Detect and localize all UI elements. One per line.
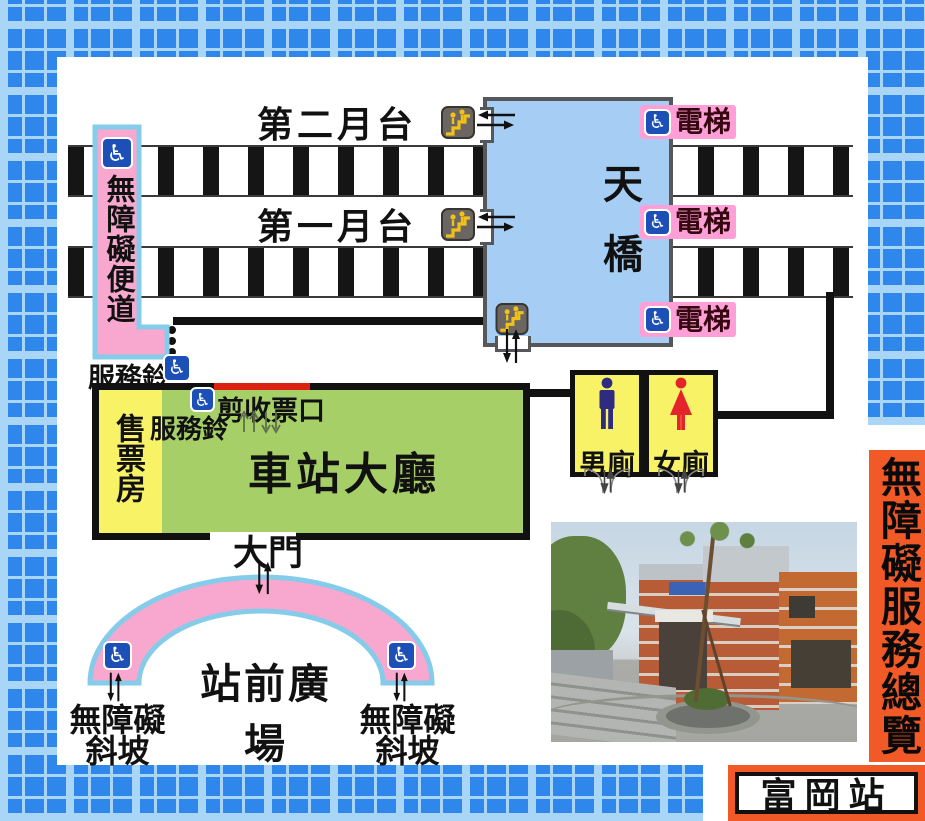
service-bell-label: 服務鈴	[88, 356, 169, 395]
ramp-label-line1: 無障礙	[350, 705, 465, 736]
ramp-label-left: 無障礙 斜坡	[60, 705, 175, 767]
ramp-label-line2: 斜坡	[60, 736, 175, 767]
wheelchair-icon	[387, 641, 416, 670]
station-name-box: 富岡站	[728, 765, 925, 821]
up-down-arrow-icon	[501, 327, 523, 370]
station-name-inner: 富岡站	[735, 772, 918, 814]
photo-window	[789, 596, 815, 618]
ramp-label-line1: 無障礙	[60, 705, 175, 736]
up-down-arrow-icon	[253, 560, 275, 601]
title-banner-text: 無障礙服務總覽	[877, 456, 918, 757]
elevator-text: 電梯	[675, 108, 731, 136]
hall-label: 車站大廳	[214, 438, 474, 502]
title-banner: 無障礙服務總覽	[869, 450, 925, 762]
photo-tree-foliage	[669, 522, 761, 554]
platform1-label: 第一月台	[237, 198, 437, 250]
left-right-arrow-icon	[475, 210, 517, 241]
elevator-label: 電梯	[640, 105, 736, 139]
hall-to-toilet-line	[530, 389, 570, 397]
platform2-label: 第二月台	[237, 96, 437, 148]
wheelchair-icon	[190, 387, 215, 412]
elevator-label: 電梯	[640, 205, 736, 239]
platform-edge-line	[173, 317, 483, 325]
photo-storefront	[791, 640, 851, 688]
toilet-to-track-line-h	[717, 411, 834, 419]
stairs-icon	[441, 208, 475, 246]
wheelchair-icon	[163, 354, 191, 382]
wheelchair-icon	[644, 209, 671, 236]
elevator-label: 電梯	[640, 302, 736, 337]
wheelchair-icon	[101, 137, 133, 169]
elevator-text: 電梯	[675, 306, 731, 334]
wheelchair-icon	[644, 109, 671, 136]
ramp-label-right: 無障礙 斜坡	[350, 705, 465, 767]
accessible-path-label: 無障礙便道	[100, 174, 136, 324]
elevator-text: 電梯	[675, 208, 731, 236]
track-platform1	[68, 246, 853, 298]
wheelchair-icon	[644, 306, 671, 333]
track-platform2	[68, 145, 853, 197]
woman-icon	[666, 377, 696, 444]
photo-station-sign	[669, 582, 705, 595]
door-swing-icon	[653, 466, 709, 501]
station-accessibility-map: 第二月台 第一月台 天橋 電梯 電梯 電梯	[0, 0, 925, 821]
gate-flow-arrows-icon	[237, 409, 281, 440]
photo-planter-plants	[684, 688, 730, 710]
left-right-arrow-icon	[475, 108, 517, 139]
toilet-to-track-line-v	[826, 292, 834, 419]
station-photo	[551, 522, 857, 742]
ticket-office-label: 售票房	[107, 413, 147, 503]
man-icon	[592, 377, 622, 444]
plaza-label: 站前廣場	[180, 650, 352, 770]
door-swing-icon	[579, 466, 635, 501]
stairs-icon	[441, 106, 475, 144]
wheelchair-icon	[103, 641, 132, 670]
ramp-label-line2: 斜坡	[350, 736, 465, 767]
station-name-text: 富岡站	[760, 767, 892, 819]
